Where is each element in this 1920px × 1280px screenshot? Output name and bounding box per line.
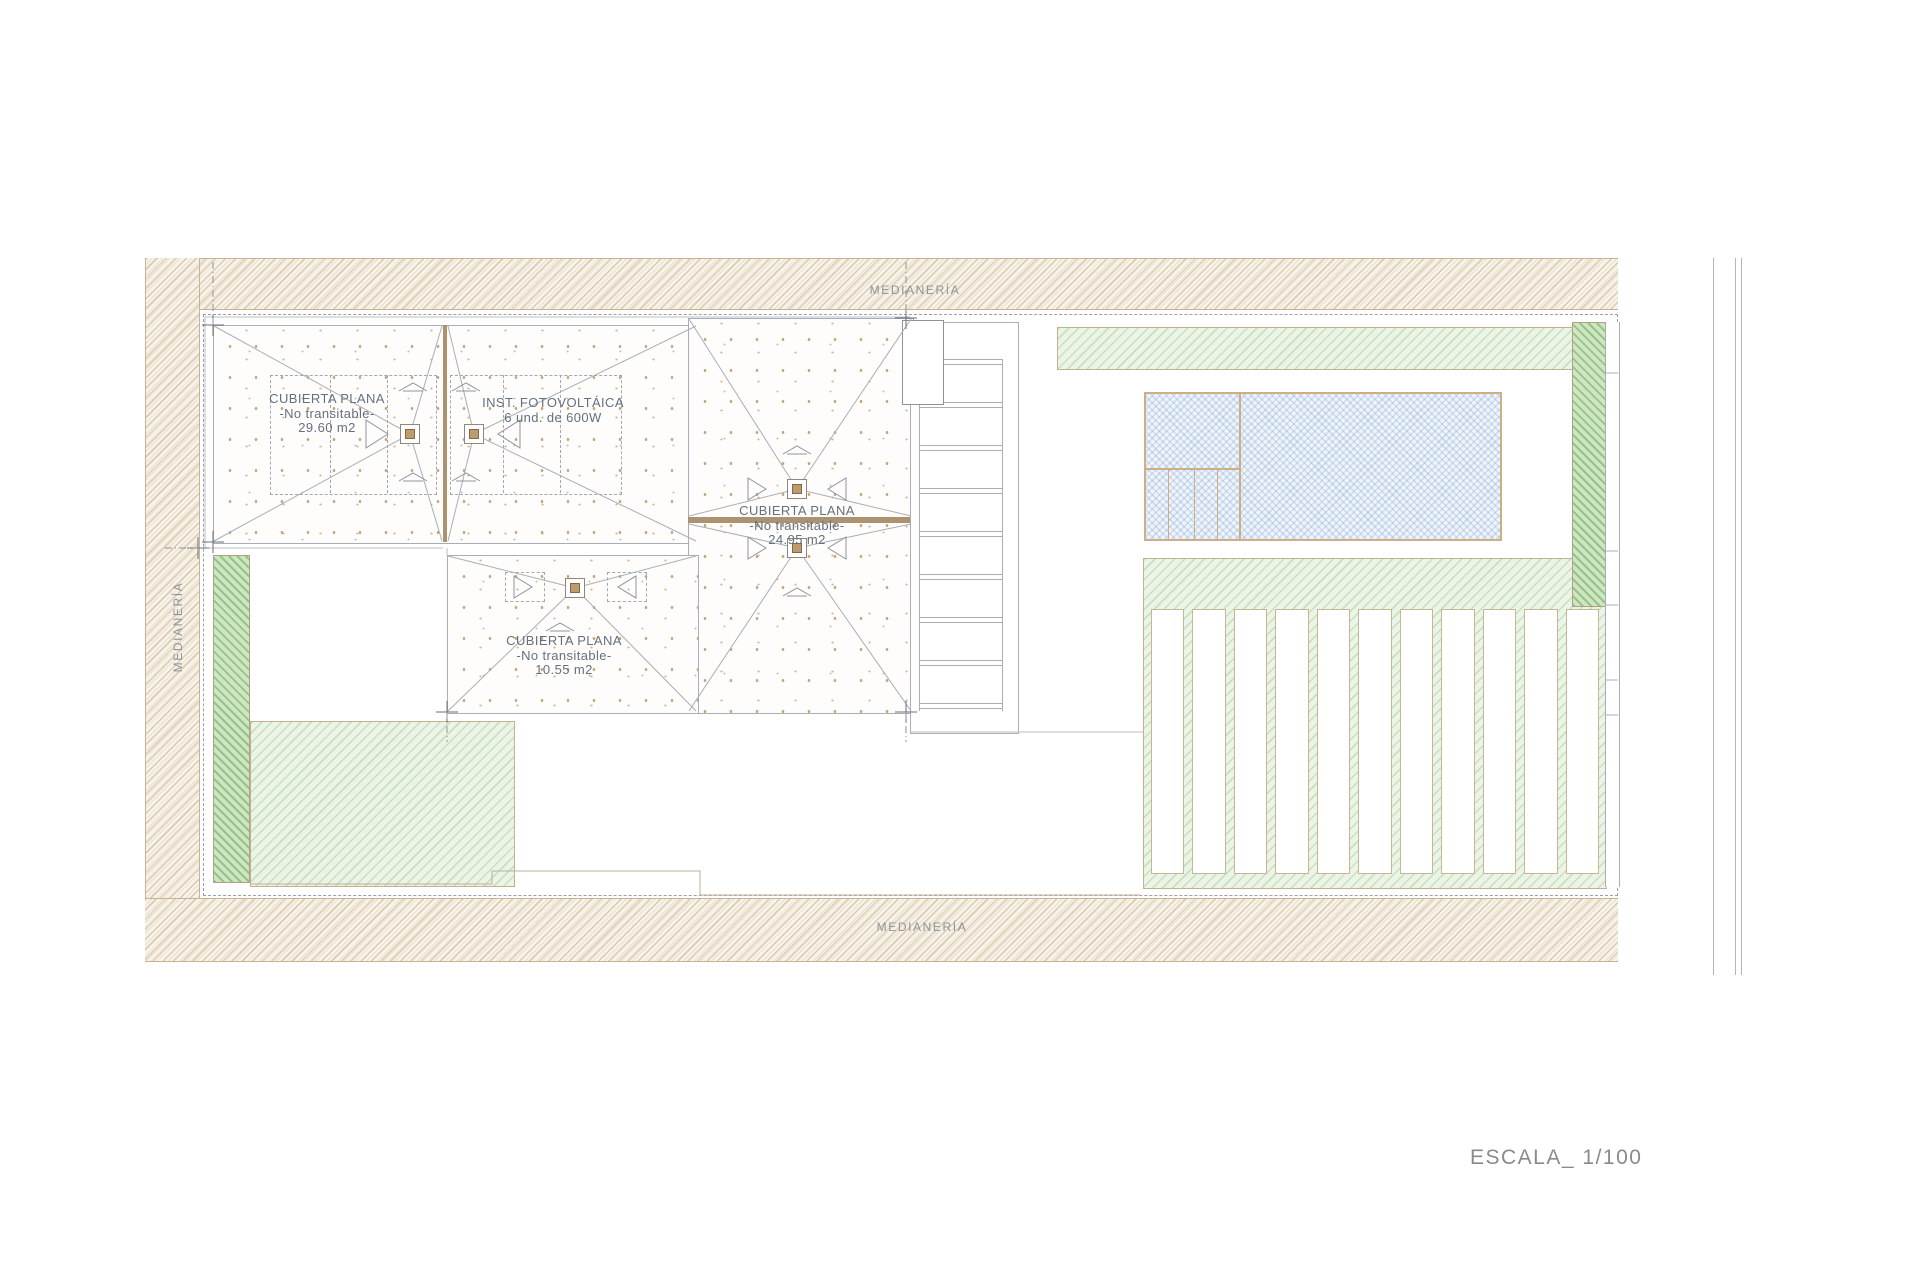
- roof3-label: CUBIERTA PLANA -No transitable- 24.95 m2: [739, 504, 855, 548]
- page-edge-line: [1735, 258, 1736, 975]
- roof-drain-icon: [400, 424, 420, 444]
- pv-label-line1: INST. FOTOVOLTÁICA: [482, 396, 624, 411]
- roof1-label: CUBIERTA PLANA -No transitable- 29.60 m2: [269, 392, 385, 436]
- roof4-label-line1: CUBIERTA PLANA: [506, 634, 622, 649]
- roof4-label: CUBIERTA PLANA -No transitable- 10.55 m2: [506, 634, 622, 678]
- eave-lines: [198, 317, 1143, 732]
- roof4-label-line2: -No transitable-: [506, 649, 622, 664]
- roof1-label-line3: 29.60 m2: [269, 421, 385, 436]
- roof-drain-core: [405, 429, 415, 439]
- scale-label: ESCALA_ 1/100: [1470, 1146, 1642, 1170]
- roof-drain-icon: [787, 479, 807, 499]
- floor-plan-canvas: MEDIANERÍA MEDIANERÍA MEDIANERÍA: [0, 0, 1920, 1280]
- roof-drain-core: [792, 484, 802, 494]
- roof4-label-line3: 10.55 m2: [506, 663, 622, 678]
- page-edge-line: [1741, 258, 1742, 975]
- roof-drain-icon: [464, 424, 484, 444]
- plan-linework: [0, 0, 1920, 1280]
- wall-opening-marks: [1605, 373, 1618, 715]
- roof3-label-line2: -No transitable-: [739, 519, 855, 534]
- page-edge-line: [1713, 258, 1714, 975]
- roof-drain-core: [570, 583, 580, 593]
- roof-drain-icon: [565, 578, 585, 598]
- pv-label: INST. FOTOVOLTÁICA 6 und. de 600W: [482, 396, 624, 425]
- roof1-label-line2: -No transitable-: [269, 407, 385, 422]
- roof3-label-line1: CUBIERTA PLANA: [739, 504, 855, 519]
- roof1-label-line1: CUBIERTA PLANA: [269, 392, 385, 407]
- terrace-step-outline: [250, 871, 1140, 895]
- roof-drain-core: [469, 429, 479, 439]
- roof3-label-line3: 24.95 m2: [739, 533, 855, 548]
- pv-label-line2: 6 und. de 600W: [482, 411, 624, 426]
